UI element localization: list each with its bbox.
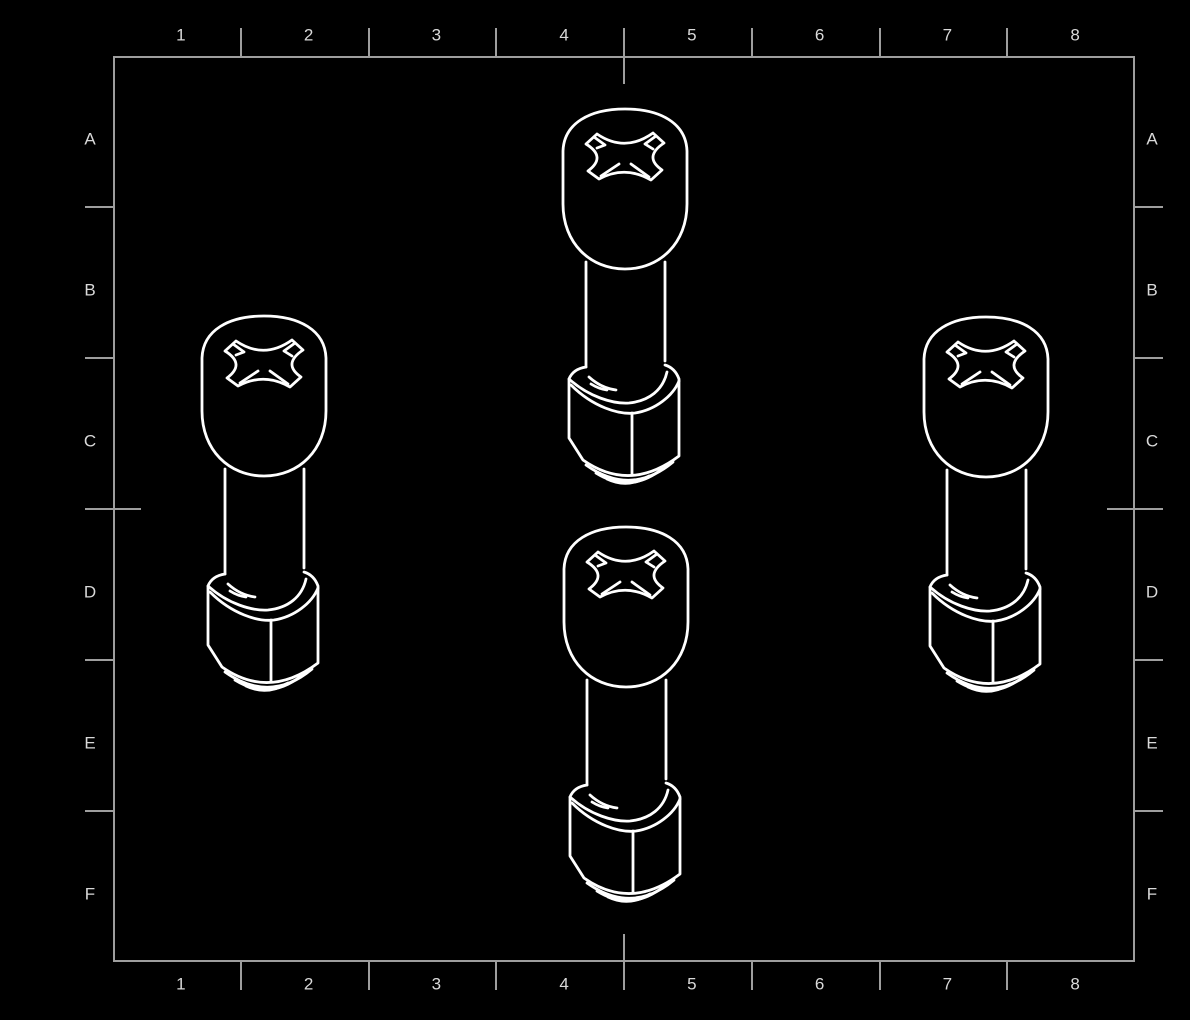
drawing-canvas: 12345678 12345678 ABCDEF ABCDEF xyxy=(0,0,1190,1020)
part-view-left[interactable] xyxy=(202,316,326,690)
parts-layer xyxy=(0,0,1190,1020)
part-view-right[interactable] xyxy=(924,317,1048,691)
part-view-bottom-center[interactable] xyxy=(564,527,688,901)
part-view-top-center[interactable] xyxy=(563,109,687,483)
